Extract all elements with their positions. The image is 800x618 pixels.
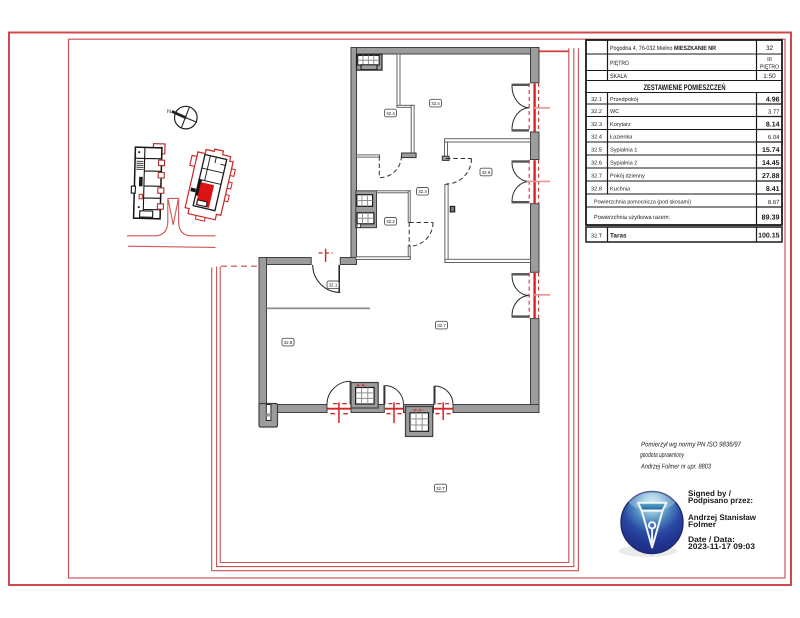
svg-text:Podpisano przez:: Podpisano przez: [688, 496, 753, 505]
svg-text:SKALA: SKALA [610, 73, 628, 80]
svg-text:Pomierzył wg normy PN ISO 983: Pomierzył wg normy PN ISO 9836/97 [641, 441, 742, 449]
svg-text:Pokój dzienny: Pokój dzienny [610, 172, 645, 179]
svg-text:3.77: 3.77 [768, 108, 780, 115]
svg-text:Sypialnia 1: Sypialnia 1 [610, 146, 637, 153]
svg-text:Andrzej Folmer nr upr. 8803: Andrzej Folmer nr upr. 8803 [640, 463, 711, 471]
svg-text:PIĘTRO: PIĘTRO [610, 60, 629, 67]
svg-text:32.3: 32.3 [591, 122, 602, 128]
svg-text:Przedpokój: Przedpokój [610, 96, 638, 103]
svg-text:32.8: 32.8 [591, 186, 602, 192]
svg-text:Powierzchnia użytkowa razem:: Powierzchnia użytkowa razem: [594, 214, 670, 221]
svg-text:32.T: 32.T [436, 486, 445, 491]
svg-text:8.14: 8.14 [766, 121, 780, 128]
svg-text:Powierzchnia pomocnicza (pod s: Powierzchnia pomocnicza (pod skosami) [594, 198, 691, 205]
svg-text:32.3: 32.3 [418, 189, 427, 194]
svg-text:Korytarz: Korytarz [610, 122, 631, 128]
svg-text:N: N [167, 109, 171, 115]
svg-text:100.15: 100.15 [758, 233, 780, 240]
svg-text:4.96: 4.96 [766, 96, 780, 103]
svg-text:32.1: 32.1 [591, 97, 602, 103]
svg-text:14.45: 14.45 [762, 160, 780, 167]
svg-text:15.74: 15.74 [762, 147, 780, 154]
svg-text:32.2: 32.2 [591, 109, 602, 115]
svg-text:PIĘTRO: PIĘTRO [760, 63, 779, 70]
svg-text:32.5: 32.5 [431, 101, 440, 106]
svg-text:Sypialnia 2: Sypialnia 2 [610, 159, 637, 166]
svg-text:2023-11-17 09:03: 2023-11-17 09:03 [688, 542, 756, 551]
svg-text:89.39: 89.39 [762, 212, 780, 221]
svg-text:1:50: 1:50 [763, 73, 776, 80]
svg-text:III: III [767, 57, 772, 63]
svg-text:WC: WC [610, 109, 619, 115]
svg-text:Pogodna 4, 76-032 Mielno MIESZ: Pogodna 4, 76-032 Mielno MIESZKANIE NR [610, 45, 716, 52]
svg-text:Taras: Taras [610, 232, 627, 239]
svg-text:32.T: 32.T [591, 233, 603, 239]
svg-text:32.5: 32.5 [591, 147, 602, 153]
svg-text:32.4: 32.4 [386, 111, 395, 116]
svg-text:geodeta uprawniony: geodeta uprawniony [640, 451, 684, 459]
svg-text:32.6: 32.6 [591, 160, 602, 166]
svg-text:8.41: 8.41 [766, 186, 780, 193]
svg-text:Łazienka: Łazienka [610, 133, 633, 140]
svg-text:27.88: 27.88 [762, 173, 780, 180]
svg-text:32.7: 32.7 [591, 173, 602, 179]
svg-text:8.67: 8.67 [768, 199, 780, 206]
svg-text:Kuchnia: Kuchnia [610, 185, 631, 192]
svg-text:32.4: 32.4 [591, 134, 602, 140]
svg-text:32.2: 32.2 [386, 219, 395, 224]
svg-text:32: 32 [766, 45, 774, 52]
svg-text:32.1: 32.1 [329, 283, 338, 288]
svg-text:32.7: 32.7 [437, 323, 446, 328]
svg-text:6.04: 6.04 [768, 134, 780, 141]
svg-text:32.6: 32.6 [482, 170, 491, 175]
svg-text:32.8: 32.8 [284, 340, 293, 345]
svg-text:Folmer: Folmer [688, 520, 716, 529]
svg-text:ZESTAWIENIE POMIESZCZEŃ: ZESTAWIENIE POMIESZCZEŃ [644, 82, 726, 92]
